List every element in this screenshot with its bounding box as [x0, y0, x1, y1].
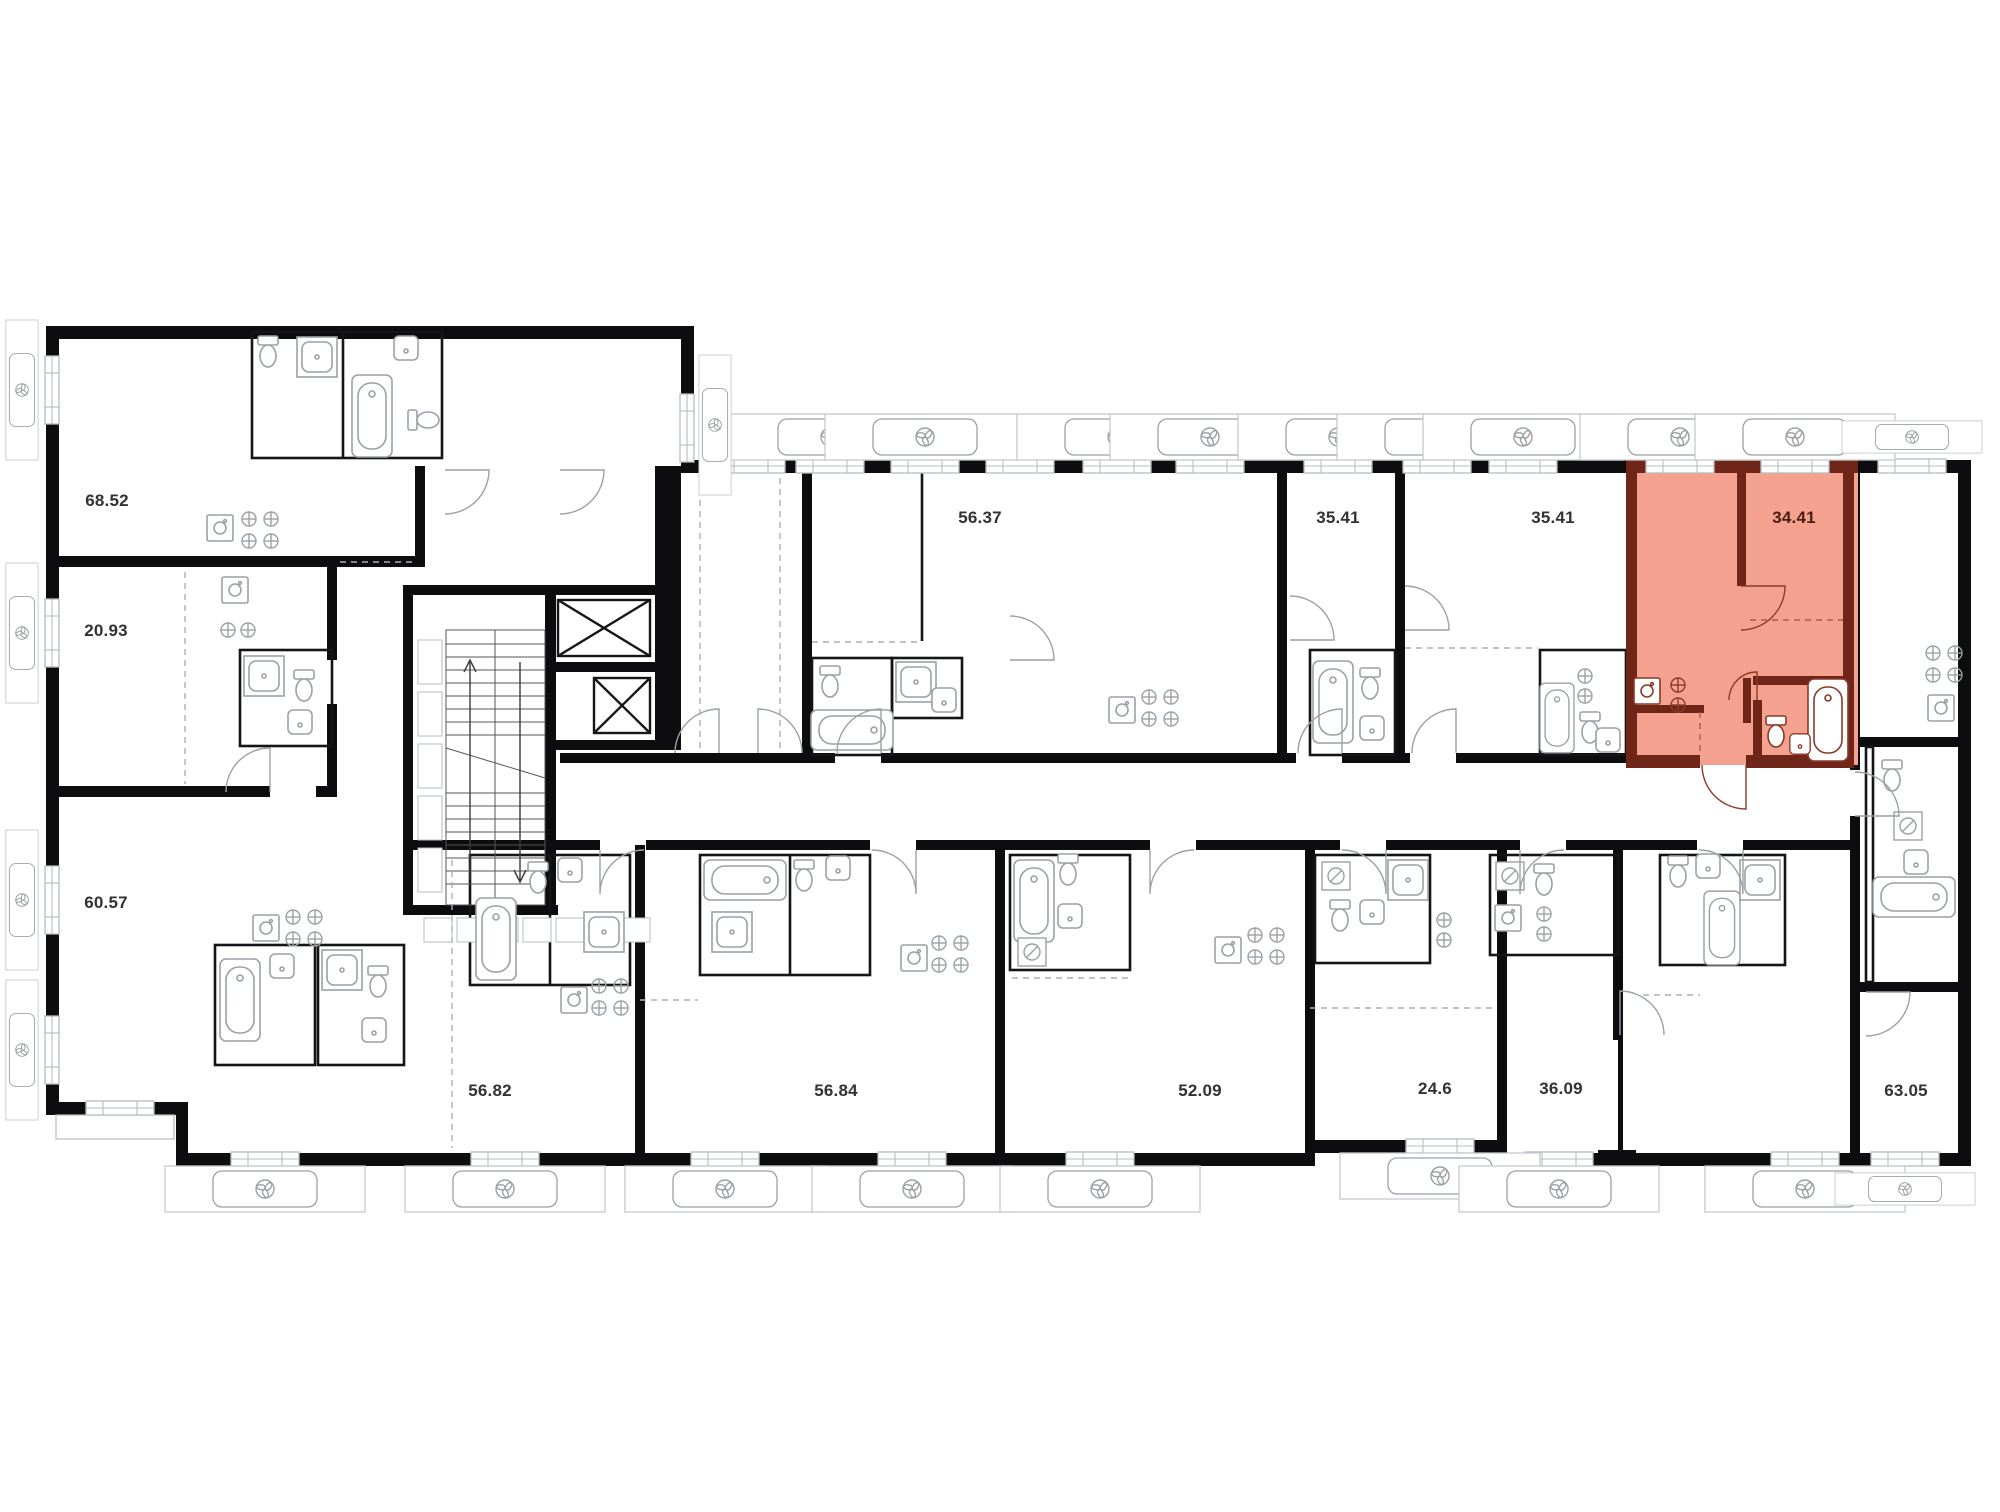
window-icon	[471, 1152, 539, 1166]
balcony-vent-box	[1842, 421, 1982, 453]
balcony-vent-box	[165, 1166, 365, 1212]
balcony-vent-box	[625, 1166, 825, 1212]
window-icon	[1489, 459, 1557, 473]
balcony-vent-box	[6, 830, 38, 970]
window-icon	[680, 394, 694, 462]
balcony-vent-box	[1835, 1173, 1975, 1205]
window-icon	[1304, 459, 1372, 473]
balcony-outline	[56, 1115, 174, 1139]
window-icon	[45, 356, 59, 424]
window-icon	[986, 459, 1054, 473]
window-icon	[1083, 459, 1151, 473]
highlighted-unit-34-41[interactable]	[1626, 460, 1858, 809]
balcony-vent-box	[6, 563, 38, 703]
floor-plan-page: 68.5220.9360.5756.3735.4135.4134.4156.82…	[0, 0, 2000, 1512]
balcony-vent-box	[812, 1166, 1012, 1212]
balcony-vent-box	[699, 355, 731, 495]
window-icon	[796, 459, 864, 473]
window-icon	[1176, 459, 1244, 473]
balcony-vent-box	[825, 414, 1025, 460]
window-icon	[878, 1152, 946, 1166]
window-icon	[1761, 459, 1829, 473]
window-icon	[1871, 1152, 1939, 1166]
window-icon	[86, 1101, 154, 1115]
window-icon	[45, 866, 59, 934]
balcony-vent-box	[405, 1166, 605, 1212]
window-icon	[1403, 459, 1471, 473]
window-icon	[891, 459, 959, 473]
window-icon	[1066, 1152, 1134, 1166]
window-icon	[1646, 459, 1714, 473]
floor-plan-drawing	[0, 0, 2000, 1512]
balcony-vent-box	[6, 320, 38, 460]
window-icon	[45, 1016, 59, 1084]
window-icon	[1771, 1152, 1839, 1166]
window-icon	[691, 1152, 759, 1166]
balcony-vent-box	[1000, 1166, 1200, 1212]
window-icon	[231, 1152, 299, 1166]
window-icon	[45, 599, 59, 667]
balcony-vent-box	[1459, 1166, 1659, 1212]
window-icon	[1878, 459, 1946, 473]
window-icon	[1406, 1139, 1474, 1153]
balcony-vent-box	[6, 980, 38, 1120]
